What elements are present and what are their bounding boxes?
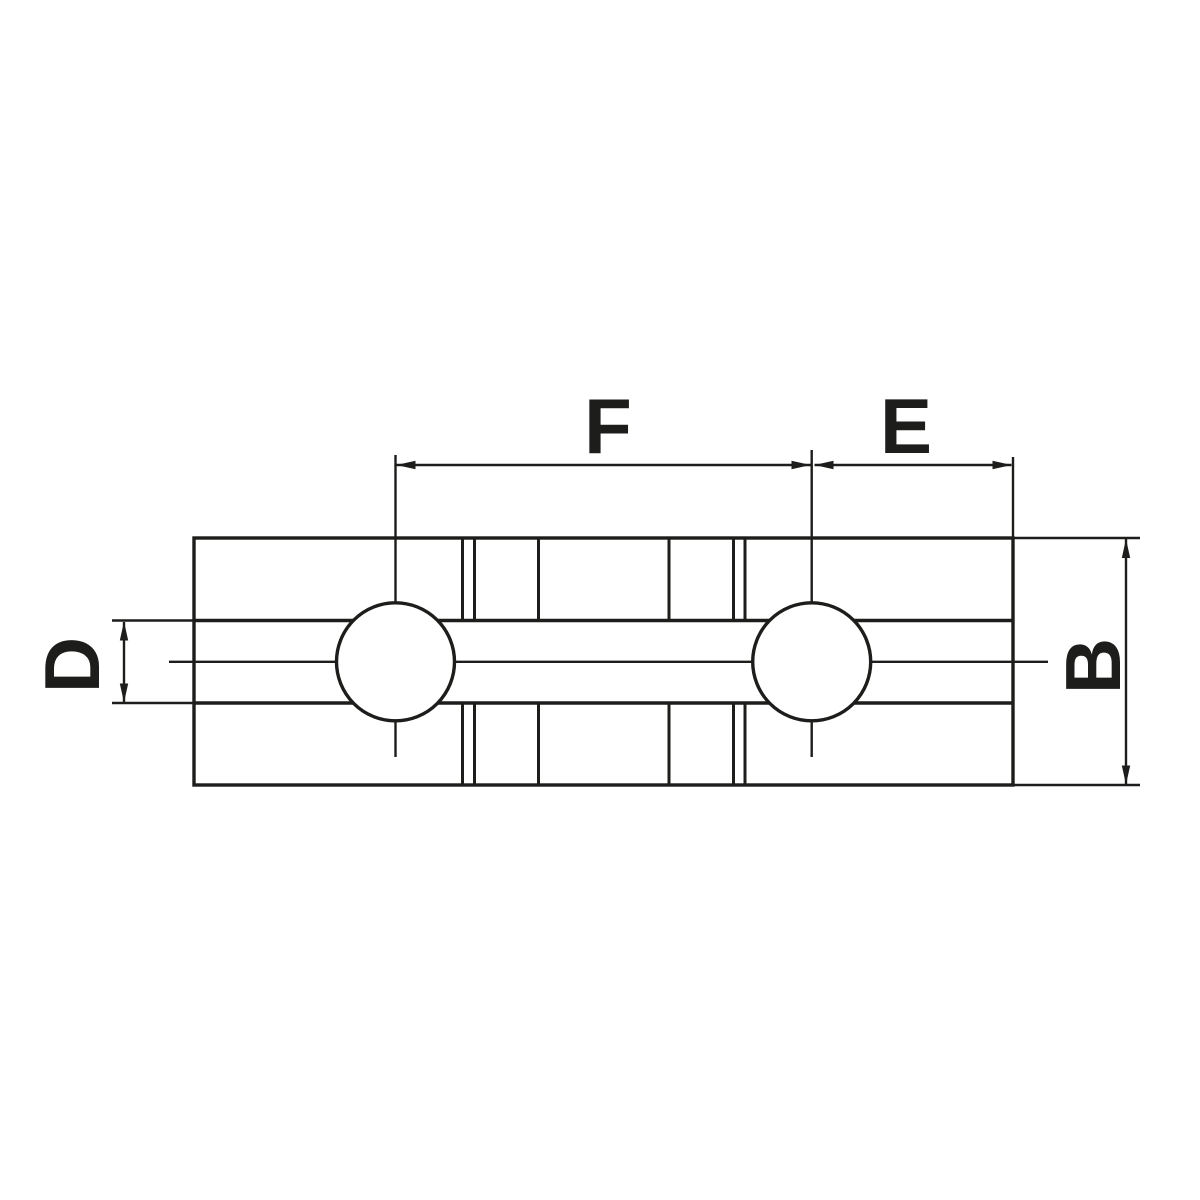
arrow-e-right: [993, 461, 1012, 469]
arrow-d-bottom: [120, 684, 128, 703]
dimension-label-D: D: [28, 637, 116, 693]
dimension-label-E: E: [880, 382, 932, 470]
hole-right: [753, 603, 871, 721]
arrow-b-top: [1122, 539, 1130, 558]
dimension-label-F: F: [584, 382, 632, 470]
hole-left: [337, 603, 455, 721]
arrow-b-bottom: [1122, 766, 1130, 785]
groove-lines-bottom-band: [463, 703, 746, 785]
arrow-f-right: [792, 461, 811, 469]
centerlines-and-extensions: [112, 450, 1140, 785]
groove-lines-top-band: [463, 538, 746, 621]
dimension-label-B: B: [1049, 638, 1137, 694]
technical-drawing-canvas: F E B D: [0, 0, 1200, 1200]
technical-drawing: F E B D: [0, 0, 1200, 1200]
arrow-f-left: [397, 461, 416, 469]
arrow-d-top: [120, 622, 128, 641]
arrow-e-left: [815, 461, 834, 469]
dimension-arrowheads: [120, 461, 1130, 785]
